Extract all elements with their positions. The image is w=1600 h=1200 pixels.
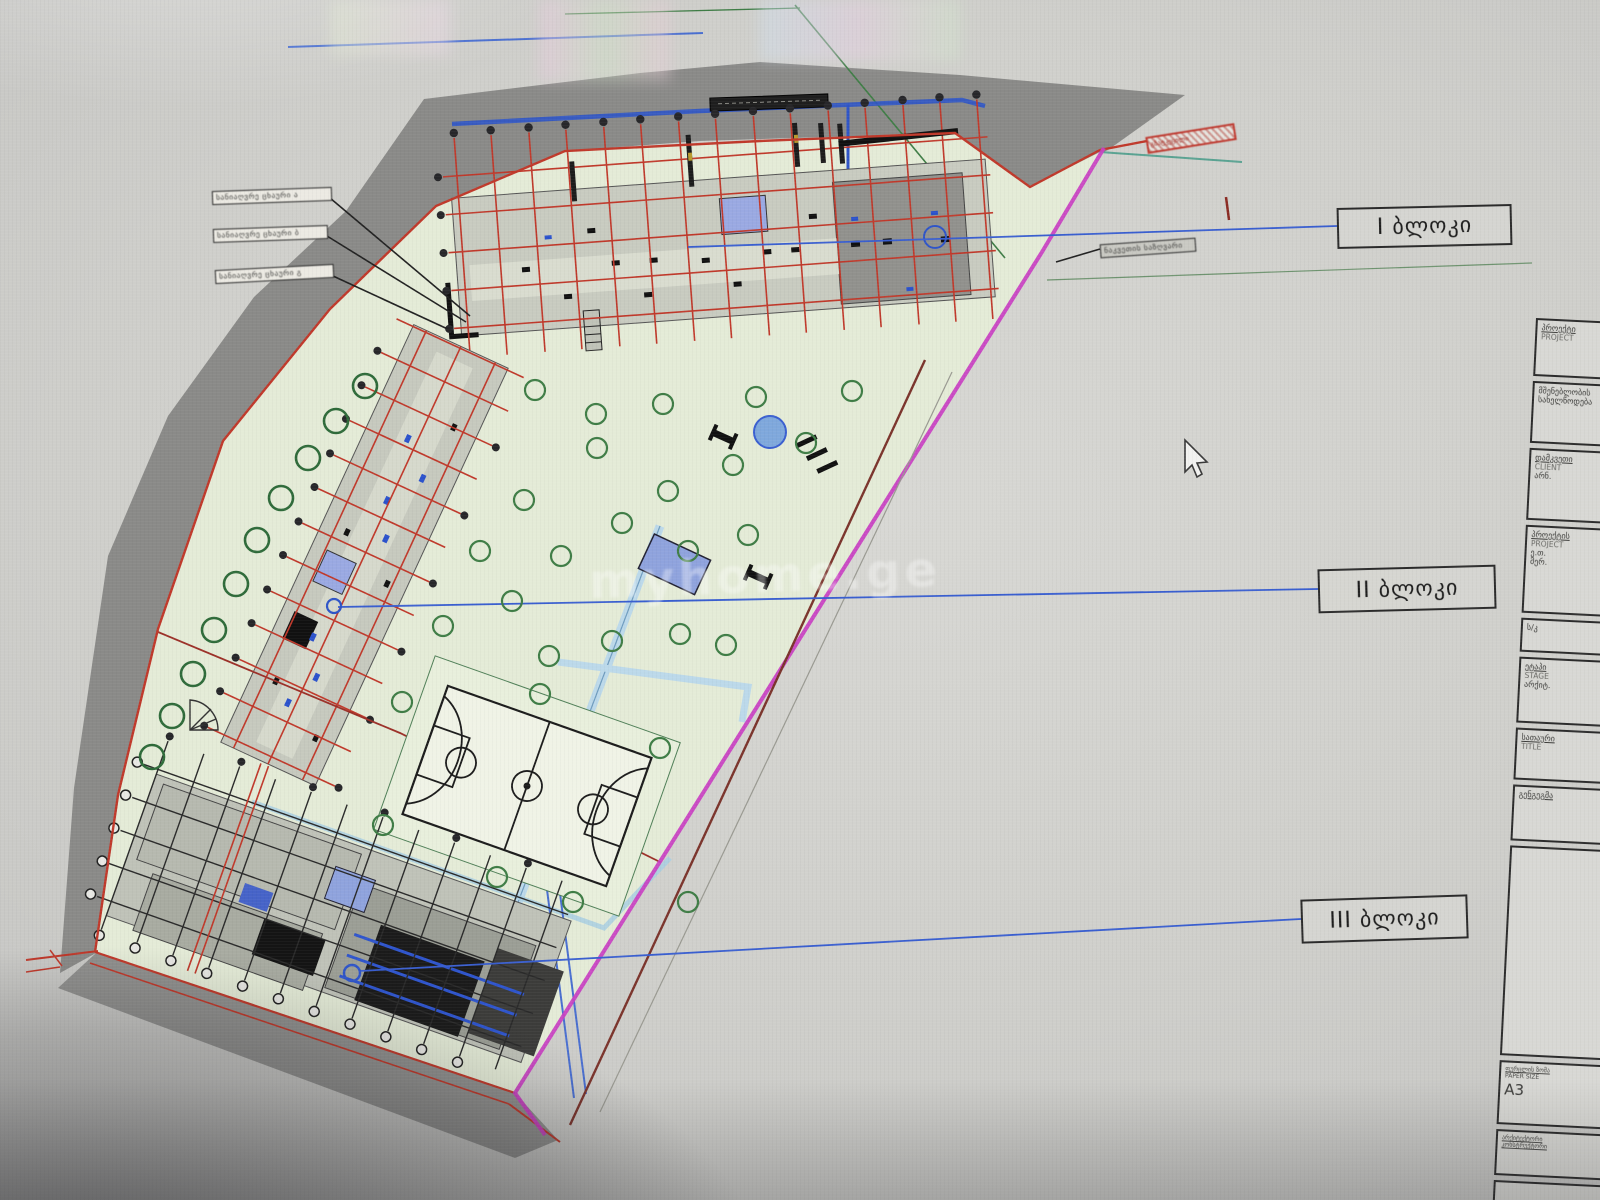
paper-size-value: A3 bbox=[1504, 1080, 1600, 1103]
titleblock-row: ფურცლის ზომა PAPER SIZE A3 bbox=[1497, 1060, 1600, 1130]
titleblock-row: გენგეგმა bbox=[1510, 784, 1600, 846]
titleblock-row bbox=[1500, 845, 1600, 1061]
titleblock-text: ს/კ bbox=[1527, 623, 1600, 637]
monitor-photo: myhome.ge I ბლოკი II ბლოკი III ბლოკი სან… bbox=[0, 0, 1600, 1200]
green-line-top bbox=[565, 8, 800, 14]
titleblock-row bbox=[1491, 1180, 1600, 1200]
titleblock-row: პროექტი PROJECT bbox=[1533, 318, 1600, 382]
titleblock-row: არქიტექტორი კონსტრუქტორი bbox=[1494, 1129, 1600, 1181]
green-contour-line bbox=[1047, 263, 1532, 280]
blue-utility-line-top bbox=[288, 33, 703, 47]
titleblock-row: დამკვეთი CLIENT არნ. bbox=[1526, 448, 1600, 526]
round-pool bbox=[754, 416, 786, 448]
titleblock-row: პროექტის PROJECT ე.თ. მერ. bbox=[1522, 525, 1600, 619]
titleblock-text: გენგეგმა bbox=[1518, 790, 1600, 804]
red-tick bbox=[1226, 197, 1229, 220]
titleblock-row: სათაური TITLE bbox=[1513, 728, 1600, 786]
titleblock-row: ეტაპი STAGE არქიტ. bbox=[1516, 657, 1600, 729]
titleblock-text: PROJECT bbox=[1541, 332, 1600, 346]
titleblock-text: მერ. bbox=[1530, 557, 1600, 571]
titleblock-row: მშენებლობის სახელწოდება bbox=[1530, 381, 1600, 449]
teal-line bbox=[1100, 152, 1242, 162]
titleblock-text: სახელწოდება bbox=[1538, 395, 1600, 409]
block-1-label: I ბლოკი bbox=[1337, 204, 1513, 249]
titleblock-row: ს/კ bbox=[1520, 618, 1600, 658]
mouse-cursor bbox=[1185, 440, 1207, 477]
titleblock-text: არნ. bbox=[1534, 471, 1600, 485]
block-2-label: II ბლოკი bbox=[1317, 565, 1496, 614]
block-3-label: III ბლოკი bbox=[1300, 894, 1468, 943]
